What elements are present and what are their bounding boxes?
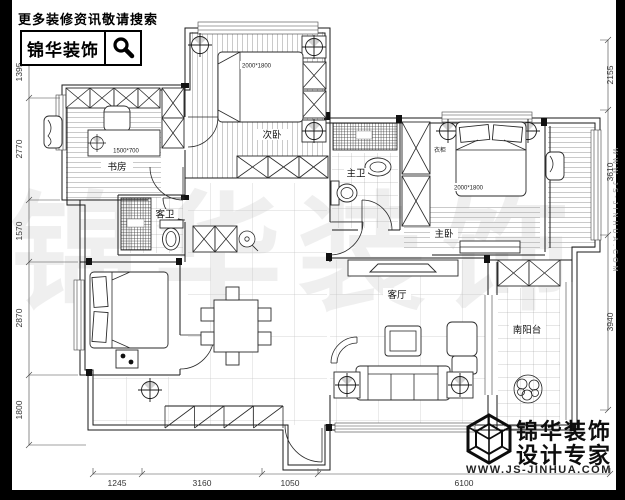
master-bed-size-label: 2000*1800 xyxy=(454,186,484,192)
brand-logo-box: 锦华装饰 xyxy=(20,30,142,66)
dim-label: 1570 xyxy=(14,221,24,240)
bay-chair xyxy=(546,152,564,180)
brand-logo-text: 锦华装饰 xyxy=(22,32,104,64)
pillow xyxy=(492,125,522,142)
chair xyxy=(201,308,214,321)
dining-table xyxy=(214,300,258,352)
window-secondary-top xyxy=(198,22,318,34)
chair xyxy=(226,352,239,365)
dim-label: 1245 xyxy=(108,478,127,488)
cube-logo-icon xyxy=(464,413,514,465)
window-master-top xyxy=(442,112,532,122)
chair xyxy=(258,332,271,345)
corridor-floor xyxy=(93,377,188,425)
search-slogan: 更多装修资讯敬请搜索 xyxy=(18,9,158,28)
dim-label: 2770 xyxy=(14,139,24,158)
sofa xyxy=(356,366,450,400)
room-label-guest-bath: 客卫 xyxy=(155,209,175,221)
door-arc-entry xyxy=(285,425,322,462)
left-frame-strip xyxy=(0,0,12,500)
chair xyxy=(258,308,271,321)
tv xyxy=(370,264,436,272)
pillow xyxy=(92,277,108,308)
window-living-balcony xyxy=(485,295,492,395)
dim-label: 1050 xyxy=(281,478,300,488)
pillow xyxy=(92,312,108,343)
lounge-chair xyxy=(44,116,62,148)
room-label-living-room: 客厅 xyxy=(387,289,407,301)
dim-label: 6100 xyxy=(455,478,474,488)
desk-chair xyxy=(104,106,130,132)
room-label-master-bath: 主卫 xyxy=(346,168,366,180)
ottoman xyxy=(452,356,477,374)
room-label-study: 书房 xyxy=(107,161,126,173)
pillow xyxy=(459,124,489,142)
armchair xyxy=(447,322,477,356)
bay-window-floor xyxy=(548,126,595,248)
dim-label: 3940 xyxy=(605,312,615,331)
room-label-master-bedroom: 主卧 xyxy=(434,228,454,240)
window-balcony-right xyxy=(566,282,572,420)
window-living-bottom xyxy=(335,423,475,432)
chair xyxy=(201,332,214,345)
dim-label: 2870 xyxy=(14,308,24,327)
brand-website: WWW.JS-JINHUA.COM xyxy=(466,464,612,476)
secondary-wardrobe xyxy=(237,156,328,178)
bottom-frame-strip xyxy=(0,490,625,500)
chair xyxy=(226,287,239,300)
dim-label: 3160 xyxy=(193,478,212,488)
window-bedroom-left xyxy=(74,280,84,350)
desk-size-label: 1500*700 xyxy=(113,149,139,155)
sink xyxy=(365,158,391,176)
floorplan-page: 锦华装饰 xyxy=(0,0,625,500)
search-icon xyxy=(104,32,140,64)
secondary-bed-size-label: 2000*1800 xyxy=(242,64,272,70)
window-bay-right xyxy=(591,130,601,240)
nightstand xyxy=(116,350,138,368)
vertical-site-watermark: WWW.JS-JINHUA.COM xyxy=(611,148,618,274)
room-label-secondary-bedroom: 次卧 xyxy=(262,129,282,141)
dim-label: 1800 xyxy=(14,400,24,419)
balcony-floor xyxy=(498,288,560,428)
room-label-south-balcony: 南阳台 xyxy=(513,324,542,336)
dim-label: 2155 xyxy=(605,65,615,84)
wardrobe-label: 衣柜 xyxy=(434,146,446,154)
